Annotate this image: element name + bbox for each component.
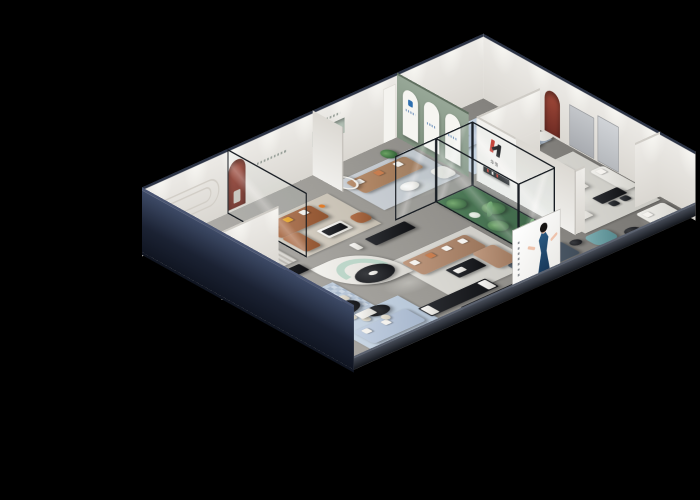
poster-blue-logo [408, 99, 413, 108]
billboard-vertical-caption [518, 241, 520, 277]
partition-e-front [635, 132, 660, 208]
building-plan: H 华饱 [142, 98, 695, 369]
partition-e-front-stub-face [575, 165, 585, 238]
sofa-pillow [456, 238, 468, 244]
sofa-pillow [441, 245, 453, 251]
sofa-pillow [409, 260, 421, 266]
sofa-pillow-orange [425, 252, 437, 258]
model-left-arm [527, 246, 535, 250]
chaise-pillow [595, 169, 607, 175]
poster-caption [427, 122, 436, 130]
model-face [541, 226, 546, 235]
sofa-pillow [380, 319, 392, 325]
arched-poster [403, 87, 418, 143]
table-decor [367, 270, 380, 276]
white-door-trim [383, 84, 396, 146]
red-arched-niche [545, 87, 560, 138]
render-stage: H 华饱 [0, 0, 700, 500]
niche-sculpture [234, 189, 241, 204]
table-tray [452, 266, 467, 273]
showroom-render: H 华饱 [0, 0, 700, 500]
poster-caption [406, 109, 415, 117]
model-right-arm [550, 232, 558, 242]
wall-lettering [257, 150, 287, 166]
bed-pillow [642, 212, 654, 218]
partition-e-front-stub [575, 165, 585, 234]
sofa-pillow [361, 328, 373, 334]
sofa-pillow-orange [373, 170, 385, 176]
red-arched-niche [228, 156, 245, 211]
model-hair [540, 221, 547, 233]
